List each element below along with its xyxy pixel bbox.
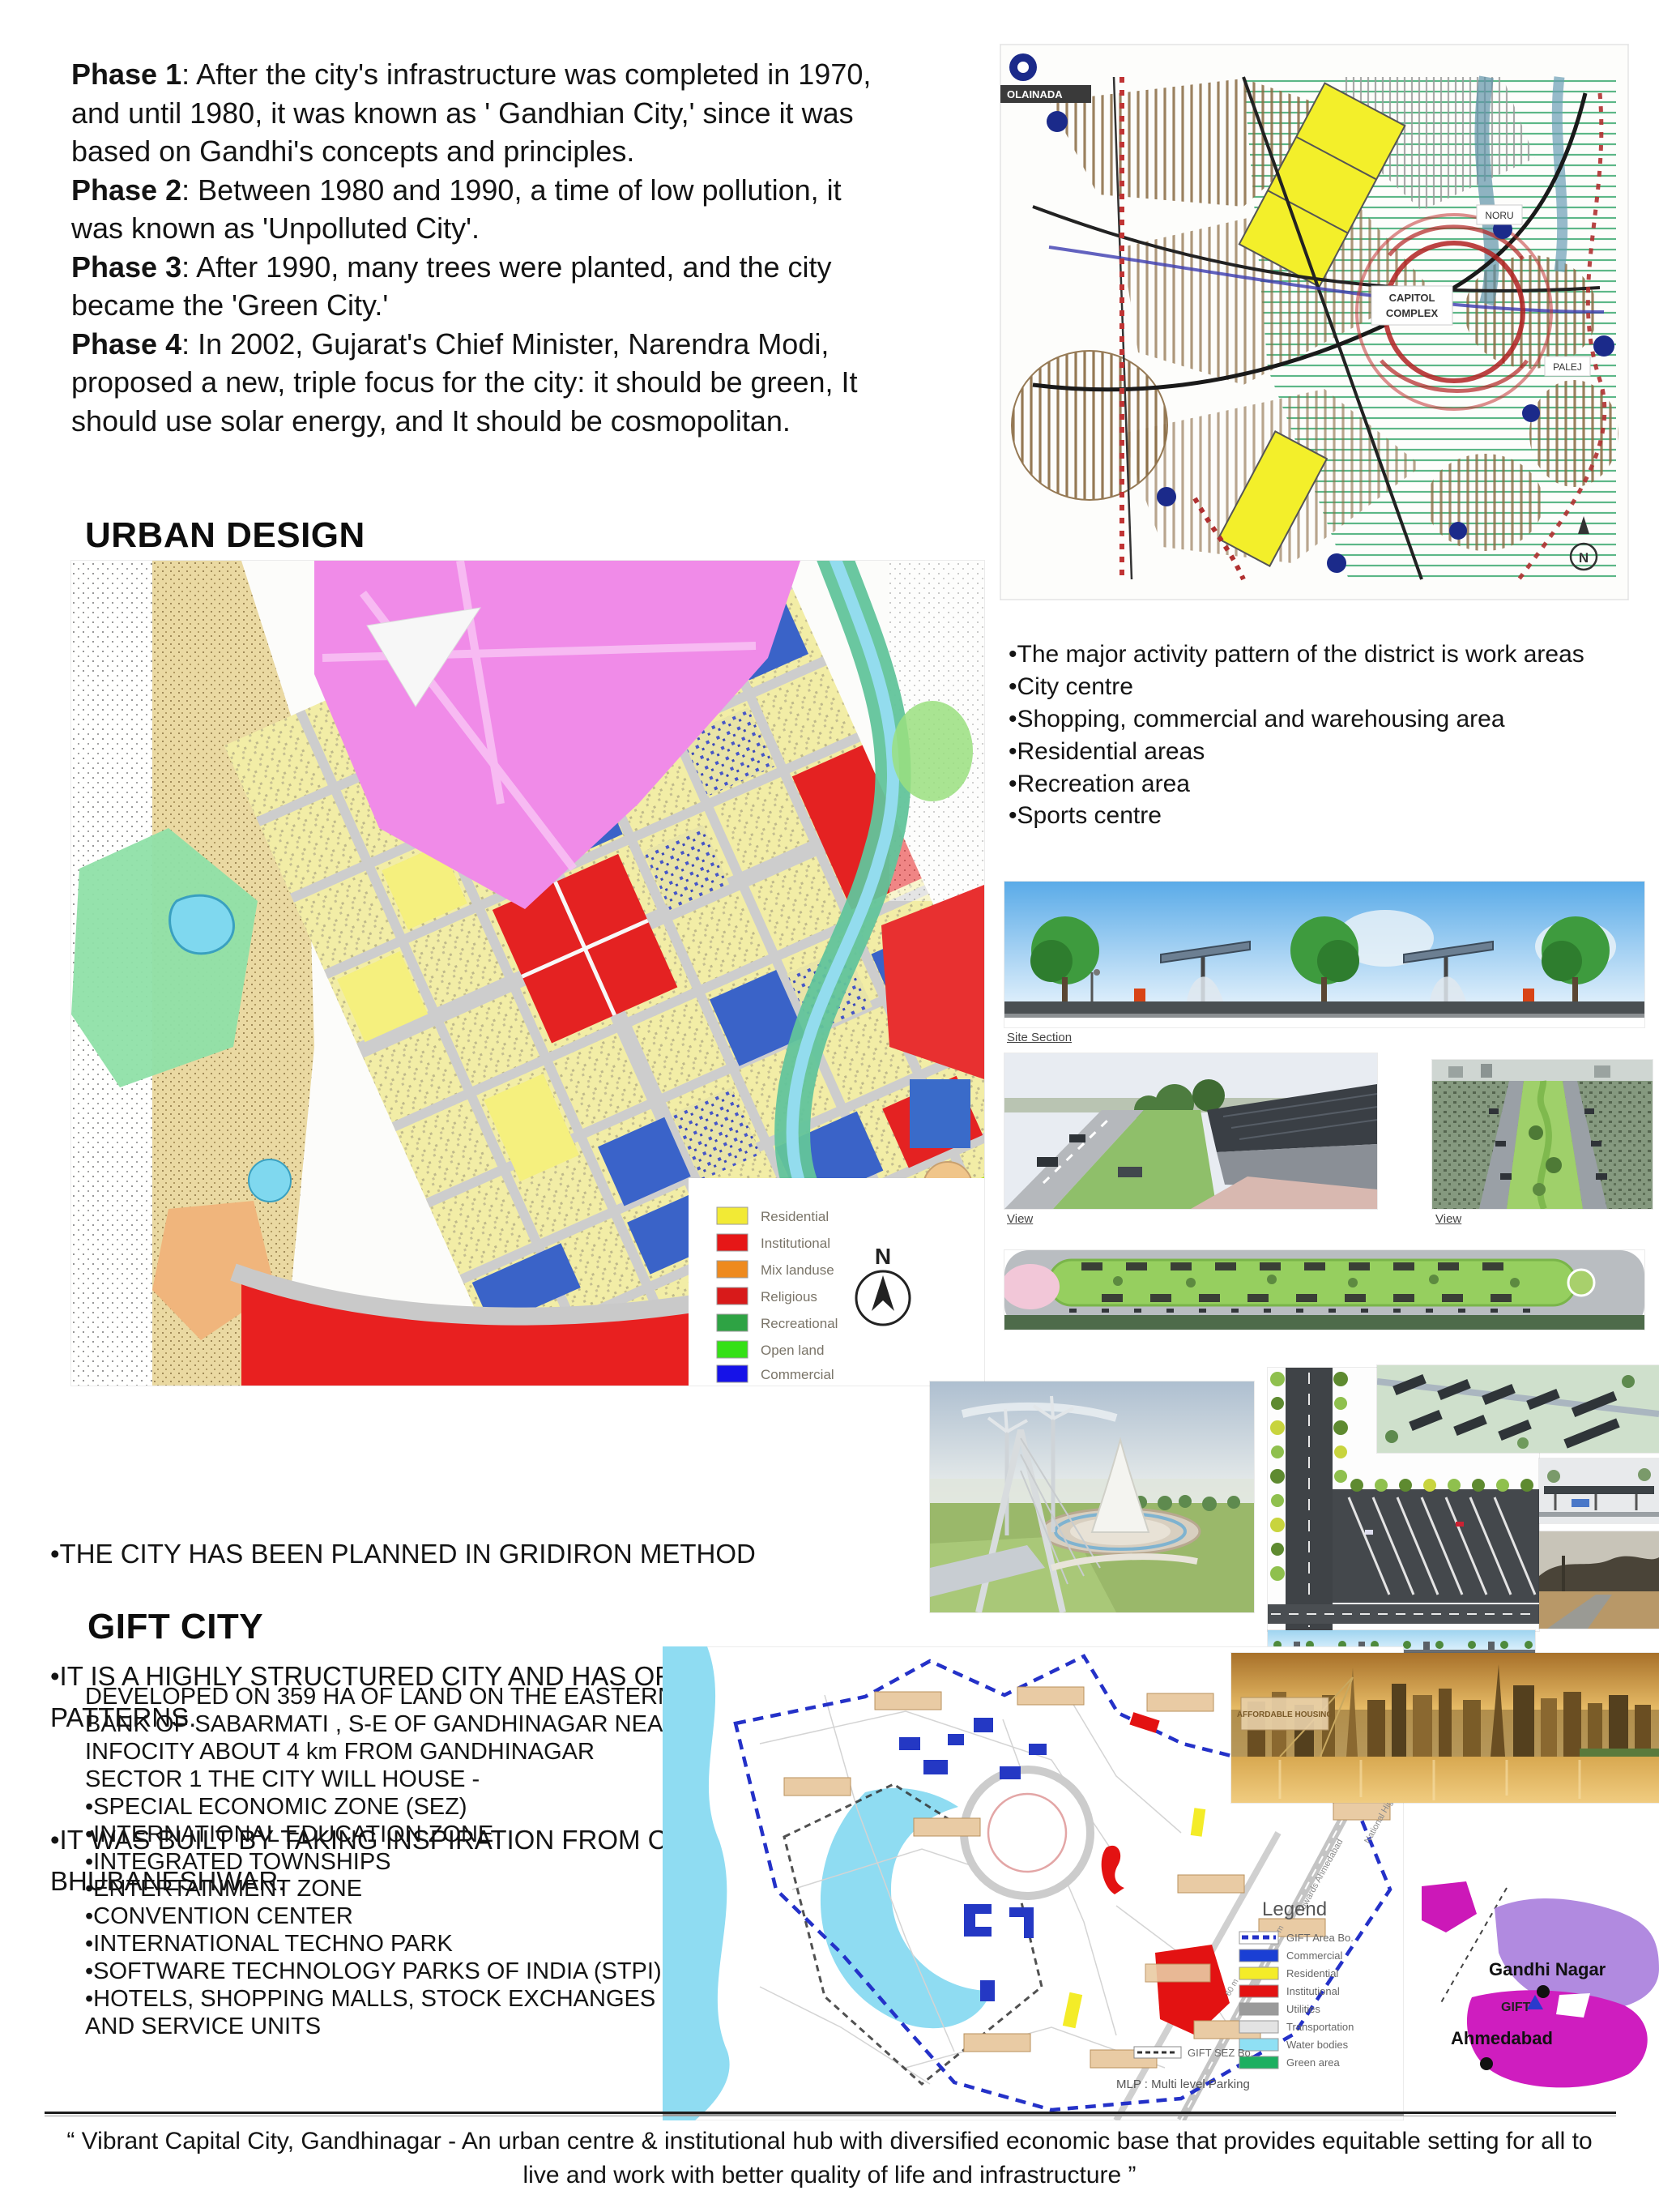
phase-history-paragraph: Phase 1: After the city's infrastructure… bbox=[71, 55, 893, 440]
bullet-item: •ENTERTAINMENT ZONE bbox=[85, 1876, 691, 1903]
phase-4-label: Phase 4 bbox=[71, 327, 181, 361]
olainada-label: OLAINADA bbox=[1007, 88, 1063, 100]
bullet-item: •Sports centre bbox=[1009, 800, 1659, 832]
skyline-render: AFFORDABLE HOUSING bbox=[1231, 1653, 1659, 1803]
phase-4: Phase 4: In 2002, Gujarat's Chief Minist… bbox=[71, 325, 893, 441]
footer-quote: “ Vibrant Capital City, Gandhinagar - An… bbox=[0, 2124, 1659, 2193]
legend-title: Legend bbox=[1262, 1898, 1327, 1920]
view-caption: View bbox=[1435, 1212, 1461, 1226]
svg-text:Transportation: Transportation bbox=[1286, 2021, 1354, 2033]
bullet-item: •Recreation area bbox=[1009, 768, 1659, 801]
phase-1-text: : After the city's infrastructure was co… bbox=[71, 58, 871, 168]
phase-1-label: Phase 1 bbox=[71, 58, 181, 91]
svg-text:Green area: Green area bbox=[1286, 2056, 1341, 2069]
legend-swatch bbox=[717, 1341, 748, 1358]
capitol-label-2: COMPLEX bbox=[1386, 307, 1439, 319]
svg-text:Water bodies: Water bodies bbox=[1286, 2039, 1349, 2051]
compass-n-label: N bbox=[875, 1244, 891, 1269]
housing-label: AFFORDABLE HOUSING bbox=[1237, 1710, 1333, 1719]
boulevard-plan-render bbox=[1004, 1250, 1644, 1330]
legend-label: Institutional bbox=[761, 1236, 830, 1251]
legend-label: Open land bbox=[761, 1343, 824, 1358]
palej-label: PALEJ bbox=[1553, 361, 1582, 373]
landuse-map: Residential Institutional Mix landuse Re… bbox=[71, 561, 984, 1386]
svg-text:Utilities: Utilities bbox=[1286, 2003, 1320, 2015]
legend-swatch bbox=[717, 1365, 748, 1382]
bullet-item: •CONVENTION CENTER bbox=[85, 1903, 691, 1931]
bullet-item: •SPECIAL ECONOMIC ZONE (SEZ) bbox=[85, 1794, 691, 1821]
bullet-item: •SOFTWARE TECHNOLOGY PARKS OF INDIA (STP… bbox=[85, 1958, 691, 1986]
footer-divider bbox=[45, 2112, 1616, 2116]
gandhinagar-dot bbox=[1537, 1985, 1550, 1998]
noru-label: NORU bbox=[1485, 210, 1513, 221]
phase-1: Phase 1: After the city's infrastructure… bbox=[71, 55, 893, 171]
phase-3-label: Phase 3 bbox=[71, 250, 181, 284]
phase-3: Phase 3: After 1990, many trees were pla… bbox=[71, 248, 893, 325]
monument-render bbox=[930, 1381, 1254, 1612]
bullet-item: •City centre bbox=[1009, 671, 1659, 703]
legend-label: Residential bbox=[761, 1209, 829, 1224]
bullet-item: •INTERNATIONAL TECHNO PARK bbox=[85, 1931, 691, 1958]
svg-text:Commercial: Commercial bbox=[1286, 1949, 1342, 1962]
legend-swatch bbox=[717, 1261, 748, 1278]
view-caption: View bbox=[1007, 1212, 1033, 1226]
bullet-item: •Residential areas bbox=[1009, 736, 1659, 768]
legend-swatch bbox=[717, 1234, 748, 1251]
legend-swatch bbox=[717, 1207, 748, 1224]
legend-label: Recreational bbox=[761, 1316, 838, 1331]
note-line: •THE CITY HAS BEEN PLANNED IN GRIDIRON M… bbox=[50, 1534, 974, 1574]
mlp-label: MLP : Multi level Parking bbox=[1116, 2077, 1250, 2091]
gift-label: GIFT bbox=[1501, 2001, 1531, 2014]
gift-intro: DEVELOPED ON 359 HA OF LAND ON THE EASTE… bbox=[85, 1684, 691, 1794]
capitol-label-1: CAPITOL bbox=[1389, 292, 1435, 304]
quote-text: “ Vibrant Capital City, Gandhinagar - An… bbox=[56, 2124, 1603, 2193]
legend-swatch bbox=[717, 1314, 748, 1331]
gandhinagar-label: Gandhi Nagar bbox=[1489, 1959, 1606, 1979]
sez-label: GIFT SEZ Bo. bbox=[1188, 2047, 1253, 2059]
phase-3-text: : After 1990, many trees were planted, a… bbox=[71, 250, 832, 322]
aerial-thumb bbox=[1377, 1365, 1659, 1453]
site-section-caption: Site Section bbox=[1007, 1031, 1072, 1044]
legend-label: Commercial bbox=[761, 1367, 834, 1382]
street-view-render bbox=[1004, 1053, 1377, 1209]
bullet-item: •The major activity pattern of the distr… bbox=[1009, 638, 1659, 671]
legend-label: Religious bbox=[761, 1289, 817, 1305]
section-thumb bbox=[1539, 1458, 1659, 1523]
site-section-render bbox=[1004, 882, 1644, 1027]
document-page: Phase 1: After the city's infrastructure… bbox=[0, 0, 1659, 2212]
locator-map: Gandhi Nagar GIFT Ahmedabad bbox=[1422, 1864, 1659, 2123]
phase-4-text: : In 2002, Gujarat's Chief Minister, Nar… bbox=[71, 327, 858, 438]
ahmedabad-dot bbox=[1480, 2057, 1493, 2070]
svg-text:GIFT Area Bo.: GIFT Area Bo. bbox=[1286, 1932, 1354, 1944]
gift-city-text: DEVELOPED ON 359 HA OF LAND ON THE EASTE… bbox=[85, 1684, 691, 2041]
bullet-item: •Shopping, commercial and warehousing ar… bbox=[1009, 703, 1659, 736]
bullet-item: •INTERNATIONAL EDUCATION ZONE bbox=[85, 1821, 691, 1849]
regional-sketch-map: OLAINADA CAPITOL COMPLEX NORU PALEJ N bbox=[1000, 45, 1628, 600]
boulevard-view-render bbox=[1432, 1060, 1653, 1209]
pond bbox=[170, 895, 234, 954]
bullet-item: •HOTELS, SHOPPING MALLS, STOCK EXCHANGES… bbox=[85, 1986, 691, 2041]
activity-bullet-list: •The major activity pattern of the distr… bbox=[1009, 638, 1659, 832]
phase-2-text: : Between 1980 and 1990, a time of low p… bbox=[71, 173, 842, 246]
ahmedabad-label: Ahmedabad bbox=[1451, 2028, 1553, 2048]
central-roundabout bbox=[964, 1770, 1090, 1896]
svg-text:Residential: Residential bbox=[1286, 1967, 1338, 1979]
phase-2: Phase 2: Between 1980 and 1990, a time o… bbox=[71, 171, 893, 248]
photo-thumb bbox=[1539, 1531, 1659, 1629]
legend-swatch bbox=[717, 1287, 748, 1305]
compass-n-label: N bbox=[1579, 550, 1589, 566]
legend-label: Mix landuse bbox=[761, 1262, 834, 1278]
svg-text:Institutional: Institutional bbox=[1286, 1985, 1340, 1997]
water-reflection bbox=[1231, 1757, 1659, 1803]
phase-2-label: Phase 2 bbox=[71, 173, 181, 207]
bullet-item: •INTEGRATED TOWNSHIPS bbox=[85, 1849, 691, 1877]
urban-design-heading: URBAN DESIGN bbox=[85, 515, 365, 556]
gift-city-heading: GIFT CITY bbox=[87, 1607, 263, 1647]
